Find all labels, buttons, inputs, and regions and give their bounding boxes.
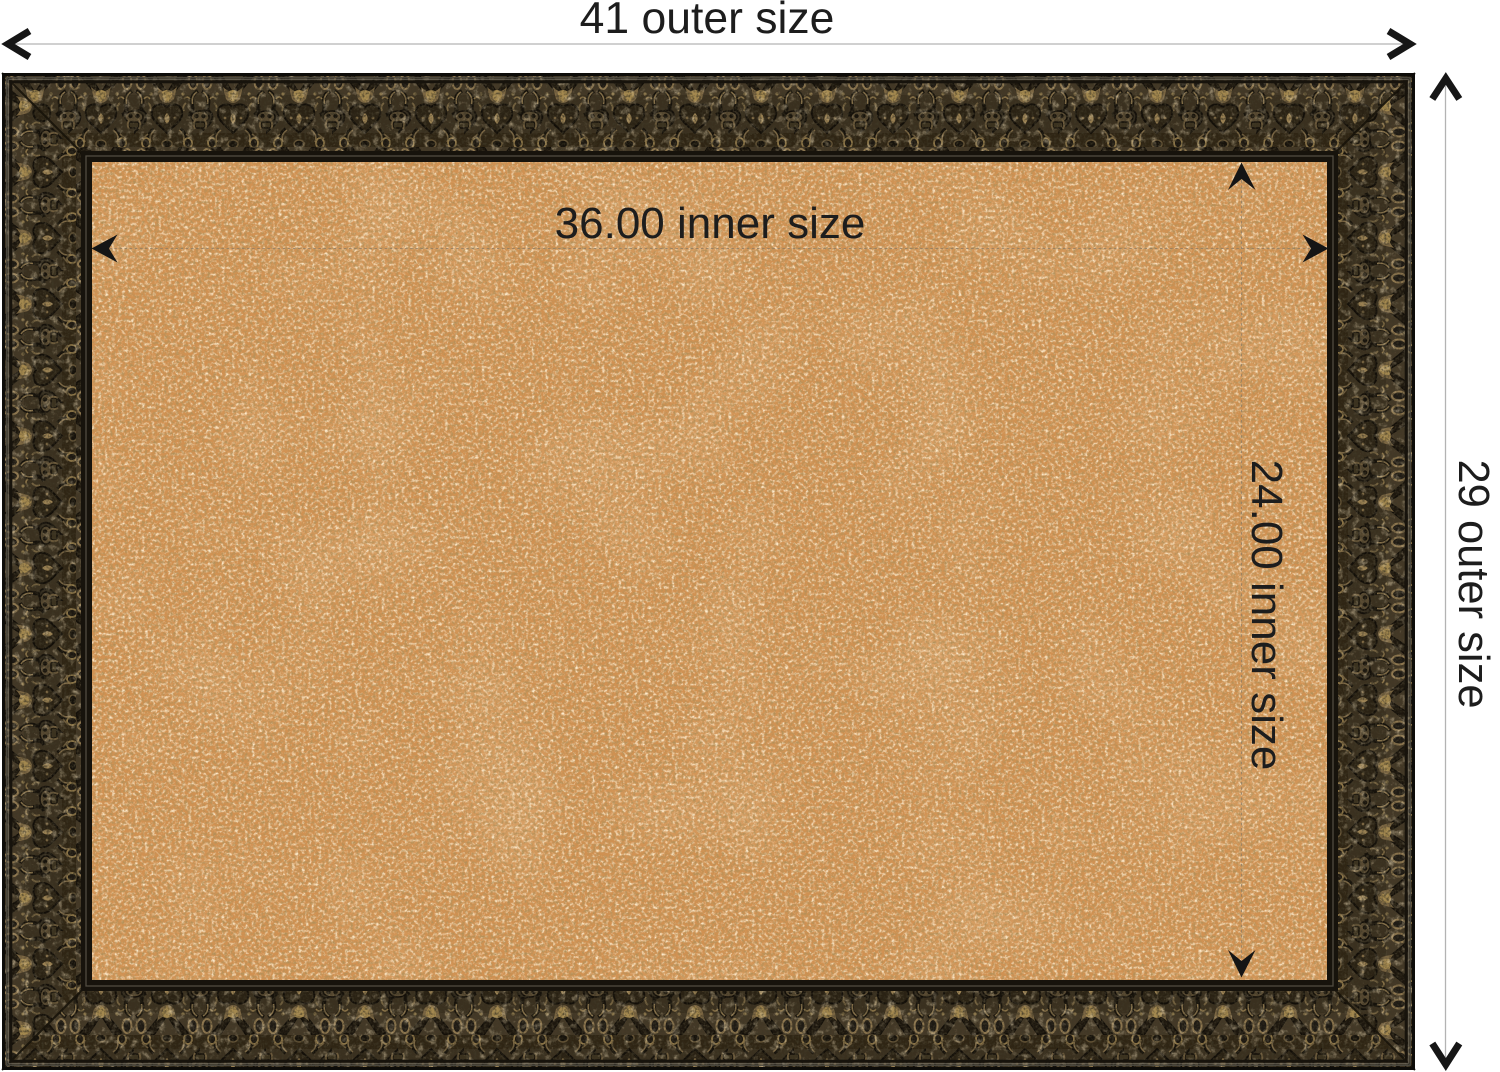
svg-text:29 outer size: 29 outer size [1449, 459, 1497, 708]
svg-text:41 outer size: 41 outer size [580, 0, 835, 43]
svg-text:36.00 inner size: 36.00 inner size [555, 199, 866, 248]
svg-text:24.00 inner size: 24.00 inner size [1242, 460, 1291, 771]
